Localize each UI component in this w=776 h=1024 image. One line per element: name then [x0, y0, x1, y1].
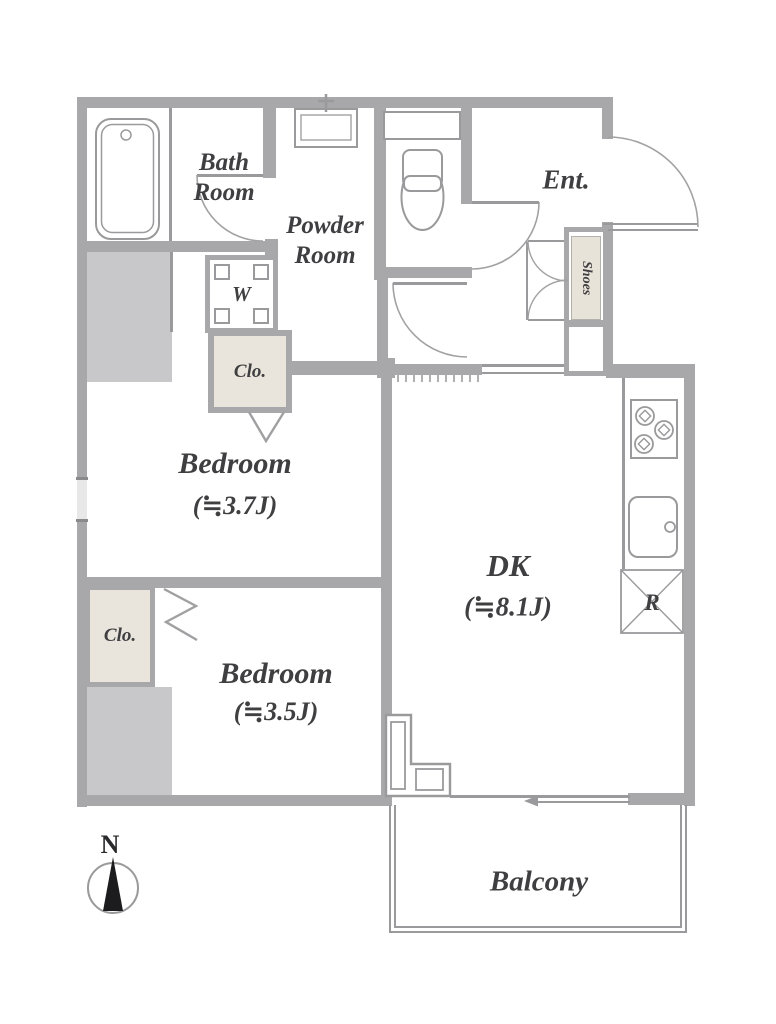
pipe-space-icon [386, 715, 450, 796]
wall-segment [77, 241, 278, 252]
hall-door-leaf [393, 282, 467, 285]
closet-upper-label: Clo. [234, 361, 266, 383]
balcony-rail-inner [394, 805, 396, 927]
stove-icon [631, 400, 677, 458]
wall-segment [390, 364, 482, 375]
hall-wall-line [482, 372, 566, 375]
shoes-door-arc [528, 280, 568, 320]
shaded-area-lower [79, 687, 172, 797]
toilet-icon [402, 150, 444, 230]
bath-unit-divider [169, 108, 172, 241]
bathtub-icon [96, 119, 159, 239]
wall-segment [77, 795, 392, 806]
folding-door-icon [249, 412, 284, 441]
powder-room-label: Powder Room [270, 211, 380, 271]
wall-segment [77, 97, 87, 807]
dk-size-label: (≒8.1J) [464, 592, 552, 623]
niche-wall [170, 252, 173, 332]
kitchen-counter-edge [622, 378, 625, 569]
window-tick [76, 519, 88, 522]
shaded-area-upper [79, 252, 172, 382]
wall-segment [374, 267, 472, 278]
washer-pan-corner [214, 264, 230, 280]
wall-segment [628, 793, 695, 805]
refrigerator-label: R [644, 590, 659, 616]
shoes-door-leaf [528, 319, 568, 321]
window [77, 479, 87, 521]
bedroom1-size-label: (≒3.7J) [193, 491, 278, 521]
wall-segment [377, 278, 388, 364]
entrance-door-swing-arc [608, 137, 698, 227]
balcony-rail-inner [394, 926, 682, 928]
washer-space: W [205, 255, 278, 333]
bedroom1-label: Bedroom [178, 447, 291, 481]
bath-room-label: Bath Room [179, 148, 269, 208]
kitchen-sink-icon [629, 497, 677, 557]
door-swing-arc [393, 283, 467, 357]
balcony-rail-inner [680, 805, 682, 927]
washer-pan-corner [214, 308, 230, 324]
wall-segment [602, 97, 613, 139]
sliding-door-panel [538, 801, 630, 804]
washer-pan-corner [253, 264, 269, 280]
entrance-door-leaf [603, 229, 698, 231]
balcony-rail [389, 805, 391, 933]
washer-pan-corner [253, 308, 269, 324]
wall-segment [461, 108, 472, 204]
entrance-door-leaf [603, 223, 698, 225]
shoes-cabinet-divider [566, 320, 606, 327]
door-swing-arc [472, 202, 539, 269]
wall-segment [290, 361, 390, 375]
wall-segment [381, 375, 392, 797]
shoes-label: Shoes [578, 261, 594, 295]
balcony-rail [685, 805, 687, 933]
bedroom2-size-label: (≒3.5J) [234, 697, 319, 727]
window-tick [76, 477, 88, 480]
wall-segment [606, 364, 695, 378]
toilet-door-leaf [472, 201, 539, 204]
threshold-hatch [397, 375, 481, 382]
compass-needle [103, 857, 123, 911]
dk-label: DK [486, 548, 529, 584]
bedroom2-label: Bedroom [219, 657, 332, 691]
balcony-label: Balcony [490, 866, 588, 899]
compass-north-label: N [101, 830, 120, 860]
sliding-door-track [450, 795, 630, 798]
closet-upper: Clo. [208, 330, 292, 413]
hall-wall-line [482, 364, 566, 367]
closet-lower-label: Clo. [104, 625, 136, 647]
toilet-counter [383, 111, 461, 140]
entrance-step-line [526, 242, 528, 320]
shoes-door-leaf [528, 240, 568, 242]
wall-segment [684, 370, 695, 806]
compass-icon [88, 857, 138, 913]
wall-segment [77, 97, 613, 108]
floor-plan: Shoes Clo. Clo. W [0, 0, 776, 1024]
balcony-rail [389, 931, 687, 933]
shoes-cabinet: Shoes [571, 236, 601, 320]
closet-lower: Clo. [85, 585, 155, 687]
shoes-door-arc [528, 241, 568, 281]
folding-door-icon [164, 589, 197, 640]
entrance-label: Ent. [542, 165, 589, 196]
washer-label: W [232, 282, 251, 307]
